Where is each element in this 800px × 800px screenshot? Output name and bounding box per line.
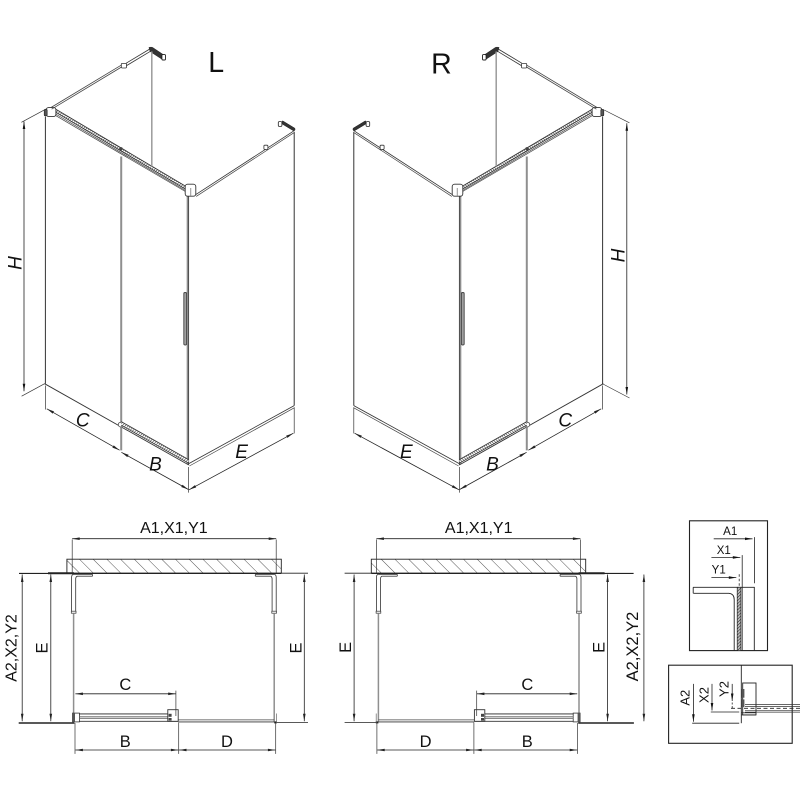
svg-text:C: C xyxy=(119,676,131,694)
svg-text:X1: X1 xyxy=(717,545,731,557)
svg-text:L: L xyxy=(208,47,224,79)
svg-text:C: C xyxy=(521,676,533,694)
svg-text:Y1: Y1 xyxy=(712,564,726,576)
svg-text:A2,X2,Y2: A2,X2,Y2 xyxy=(3,614,20,682)
svg-text:A1,X1,Y1: A1,X1,Y1 xyxy=(140,520,208,537)
svg-text:B: B xyxy=(149,455,162,476)
svg-text:A2: A2 xyxy=(678,690,693,706)
svg-text:B: B xyxy=(120,733,131,751)
svg-text:B: B xyxy=(522,733,533,751)
svg-text:C: C xyxy=(76,411,90,432)
svg-text:A1: A1 xyxy=(723,526,737,538)
svg-text:H: H xyxy=(6,256,27,270)
svg-text:E: E xyxy=(235,442,248,463)
svg-text:C: C xyxy=(558,411,572,432)
svg-text:E: E xyxy=(337,642,355,653)
svg-text:E: E xyxy=(34,642,52,653)
svg-text:R: R xyxy=(431,48,452,80)
svg-text:E: E xyxy=(287,642,305,653)
svg-text:E: E xyxy=(591,642,609,653)
svg-text:B: B xyxy=(486,455,499,476)
svg-text:Y2: Y2 xyxy=(716,681,731,697)
svg-text:D: D xyxy=(420,733,432,751)
svg-text:A2,X2,Y2: A2,X2,Y2 xyxy=(624,612,642,682)
svg-text:H: H xyxy=(608,248,629,262)
svg-text:E: E xyxy=(400,442,413,463)
svg-text:D: D xyxy=(221,733,233,751)
svg-text:A1,X1,Y1: A1,X1,Y1 xyxy=(445,520,513,537)
svg-text:X2: X2 xyxy=(697,687,712,703)
